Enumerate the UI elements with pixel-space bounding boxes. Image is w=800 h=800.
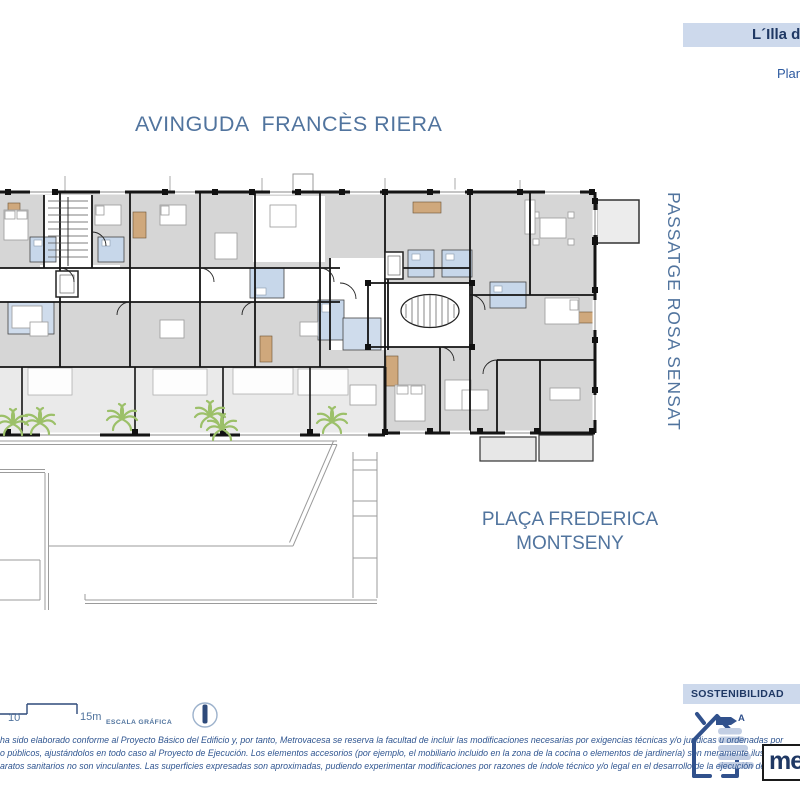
placa-line1: PLAÇA FREDERICA bbox=[462, 508, 678, 532]
brand-logo-text: me bbox=[769, 747, 800, 776]
north-arrow-icon bbox=[193, 703, 217, 727]
site-outline-lines bbox=[0, 441, 377, 610]
plan-sheet: L´Illa de Plan AVINGUDA FRANCÈS RIERA PA… bbox=[0, 0, 800, 800]
legal-disclaimer: ha sido elaborado conforme al Proyecto B… bbox=[0, 734, 680, 774]
street-label-avinguda: AVINGUDA FRANCÈS RIERA bbox=[135, 112, 442, 137]
disclaimer-line1: ha sido elaborado conforme al Proyecto B… bbox=[0, 734, 680, 747]
roof-ticks bbox=[65, 174, 520, 192]
street-label-passatge: PASSATGE ROSA SENSAT bbox=[663, 192, 684, 431]
brand-logo-box: me bbox=[762, 744, 800, 781]
scale-mid-label: 10 bbox=[8, 712, 20, 724]
project-title-banner: L´Illa de bbox=[683, 23, 800, 47]
energy-rating-letter: A bbox=[738, 713, 745, 724]
sustainability-title: SOSTENIBILIDAD bbox=[691, 688, 784, 700]
street-label-placa: PLAÇA FREDERICA MONTSENY bbox=[462, 508, 678, 556]
plan-name-label: Plan bbox=[777, 66, 800, 81]
scale-end-label: 15m bbox=[80, 711, 101, 723]
scale-caption: ESCALA GRÁFICA bbox=[106, 719, 172, 726]
sustainability-banner: SOSTENIBILIDAD bbox=[683, 684, 800, 704]
placa-line2: MONTSENY bbox=[462, 532, 678, 556]
disclaimer-line3: aratos sanitarios no son vinculantes. La… bbox=[0, 760, 680, 773]
disclaimer-line2: o públicos, ajustándolos en todo caso al… bbox=[0, 747, 680, 760]
project-title: L´Illa de bbox=[752, 26, 800, 43]
